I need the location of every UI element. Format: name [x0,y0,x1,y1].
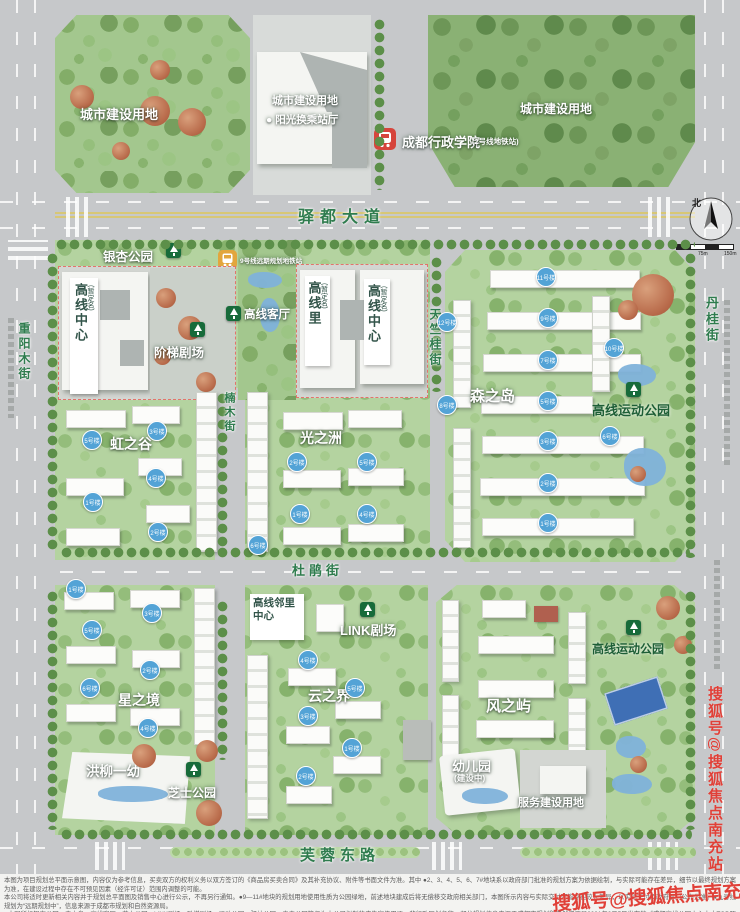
scale-tick: 150m [724,251,737,257]
transfer-hall-label: ● 阳光换乘站厅 [266,112,338,127]
park-label-sports-s: 高线运动公园 [592,640,664,657]
building [286,726,330,744]
scale-tick: 75m [698,251,708,257]
building [480,478,645,496]
pool [612,774,652,794]
cheese-park-label: 芝士公园 [168,784,216,801]
road-label-furong: 芙蓉东路 [300,844,380,865]
building [286,786,332,804]
tree-icon [626,382,641,397]
street-trees [216,600,229,760]
road-median [170,847,420,858]
compass-north-label: 北 [692,196,701,209]
street-trees [60,546,690,559]
master-plan-map: 城市建设用地 城市建设用地 ● 阳光换乘站厅 城市建设用地 成都行政学院 (2号… [0,0,740,912]
service-building [540,766,586,794]
building-red-roof [534,606,558,622]
tower-building [247,392,268,552]
building [132,650,180,668]
building [132,406,180,424]
parcel-label: 城市建设用地 [80,104,158,123]
building [348,468,404,486]
tower-building [568,698,586,756]
name-box-gaoxianli: 高线里 (暂定名) [305,276,330,366]
street-trees [684,590,697,830]
road-lane-line [60,571,690,573]
area-label-keting: 高线客厅 [244,306,290,322]
autumn-tree [630,466,646,482]
tower-building [442,600,459,682]
parcel-label: 城市建设用地 [520,100,592,117]
name-main: 高线邻里中心 [253,597,301,623]
area-label-yunzhijie: 云之界 [308,686,350,706]
planned-metro-note: 9号线远期规划地铁站 [240,255,302,265]
playground [616,736,646,758]
tower-building [247,655,268,819]
tower-building [592,296,610,392]
building [482,436,644,454]
fine-print-strip [714,560,720,670]
tower-building [453,428,471,548]
tower-building [196,392,217,552]
building-roof-detail [100,290,130,320]
street-trees [373,18,386,190]
autumn-tree [618,300,638,320]
building [482,600,526,618]
area-label-hongzhigu: 虹之谷 [110,434,152,454]
road-label-dujuan: 杜鹃街 [292,560,343,579]
service-land-label: 服务建设用地 [518,794,584,810]
name-main: 高线里 [308,281,321,326]
building [476,720,554,738]
autumn-tree [656,596,680,620]
road-label-chongyangmu: 重阳木街 [16,322,33,382]
kindergarten-pool [98,786,168,802]
building [283,470,341,488]
building [478,636,554,654]
building [66,410,126,428]
metro-station-name: 成都行政学院 [402,132,480,151]
watermark-side: 搜狐号@搜狐焦点南充站 [704,686,725,873]
building [64,592,114,610]
playground [624,448,666,486]
crosswalk [648,197,674,237]
road-label-yidu: 驿都大道 [298,203,386,227]
tree-icon [626,620,641,635]
metro-station-note: (2号线地铁站) [472,136,519,147]
road-median [520,847,696,858]
building [130,708,180,726]
kindergarten-status: (建设中) [454,772,485,784]
autumn-tree [112,142,130,160]
building [66,704,116,722]
water-feature [248,272,282,288]
tree-icon [360,602,375,617]
area-label-xingzhijing: 星之境 [118,690,160,710]
name-sub: (暂定名) [87,285,94,311]
autumn-tree [178,108,206,136]
building [66,646,116,664]
street-trees [46,252,59,552]
building-gray [403,720,431,760]
tree-icon [226,306,241,321]
building [333,756,381,774]
area-label-link-theater: LINK剧场 [340,620,396,639]
autumn-tree [630,756,647,773]
street-trees [684,252,697,558]
road-lane-line [34,0,36,874]
road-label-tianzhugui: 天竺桂街 [427,308,444,368]
area-label-fengzhiyu: 风之屿 [486,695,531,716]
building [138,458,182,476]
road-label-dangui: 丹桂街 [702,296,721,344]
area-label-senzhidao: 森之岛 [470,385,515,406]
building [283,527,341,545]
building [348,410,402,428]
crosswalk [95,842,125,870]
name-box-neighborhood: 高线邻里中心 [250,594,304,640]
building [146,505,190,523]
building-roof-detail [120,340,144,366]
tree-icon [186,762,201,777]
hongliu-label: 洪柳一幼 [86,760,140,780]
name-sub: (暂定名) [321,283,328,309]
autumn-tree [156,288,176,308]
area-label-guangzhizhou: 光之洲 [300,428,342,448]
building [487,312,641,330]
autumn-tree [632,274,674,316]
autumn-tree [132,744,156,768]
parcel-label: 城市建设用地 [272,92,338,108]
road-lane-line [16,0,18,874]
autumn-tree [150,60,170,80]
street-trees [46,590,59,830]
tower-building [453,300,471,408]
autumn-tree [196,372,216,392]
name-main: 高线中心 [74,283,87,343]
road-lane-line [0,227,740,229]
building [66,478,124,496]
autumn-tree [196,800,222,826]
tower-building [194,588,215,745]
building [130,590,180,608]
building [490,270,640,288]
name-sub: (暂定名) [380,286,387,312]
building-roof-detail [340,300,364,340]
building [348,524,404,542]
crosswalk [8,240,48,260]
name-box-gaoxian-center-w: 高线中心 (暂定名) [70,278,98,394]
building [482,518,634,536]
building [66,528,120,546]
building [288,668,336,686]
area-label-jieti: 阶梯剧场 [154,342,204,361]
crosswalk [432,842,462,870]
road-label-nanmu: 楠木街 [221,392,237,434]
name-box-gaoxian-center-e: 高线中心 (暂定名) [364,279,390,365]
park-label-sports-n: 高线运动公园 [592,400,670,419]
fine-print-strip [8,318,14,418]
autumn-tree [196,740,218,762]
street-trees [60,828,692,841]
tower-building [568,612,586,684]
street-trees [55,238,695,251]
fine-print-strip [724,300,730,465]
building [483,354,641,372]
name-main: 高线中心 [367,284,380,344]
tree-icon [190,322,205,337]
crosswalk [66,197,92,237]
kindergarten-playground [462,788,508,804]
